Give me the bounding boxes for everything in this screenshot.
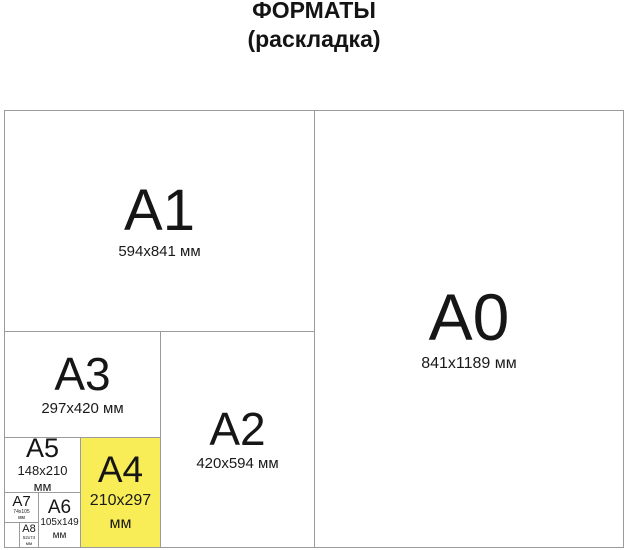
page-title: ФОРМАТЫ (раскладка) (0, 0, 628, 54)
format-dims-a6-line1: 105x149 (40, 517, 78, 530)
format-box-a3: A3 297x420 мм (4, 331, 161, 438)
page-title-line2: (раскладка) (0, 25, 628, 54)
format-dims-a7-line2: мм (18, 515, 25, 521)
format-label-a4: A4 (98, 451, 143, 489)
format-dims-a6-line2: мм (53, 530, 67, 543)
format-label-a0: A0 (429, 284, 510, 351)
page-title-line1: ФОРМАТЫ (0, 0, 628, 25)
format-box-a6: A6 105x149 мм (38, 492, 81, 548)
format-box-a1: A1 594x841 мм (4, 110, 315, 332)
format-dims-a0: 841x1189 мм (421, 354, 517, 374)
format-dims-a1: 594x841 мм (118, 243, 200, 262)
format-box-a2: A2 420x594 мм (160, 331, 315, 548)
format-label-a8: A8 (22, 524, 35, 535)
format-box-a5: A5 148x210 мм (4, 437, 81, 493)
format-dims-a5-line1: 148x210 (18, 463, 68, 479)
format-dims-a3: 297x420 мм (41, 400, 123, 419)
format-dims-a2: 420x594 мм (196, 455, 278, 474)
format-label-a6: A6 (48, 498, 71, 517)
format-box-a8: A8 52x74 мм (19, 522, 39, 548)
format-label-a5: A5 (26, 435, 59, 463)
format-label-a1: A1 (124, 181, 195, 240)
paper-formats-diagram: ФОРМАТЫ (раскладка) A1 594x841 мм A0 841… (0, 0, 628, 550)
format-dims-a8-line2: мм (26, 541, 32, 547)
format-dims-a4-line2: мм (110, 514, 132, 534)
format-box-a7: A7 74x105 мм (4, 492, 39, 523)
format-box-a4-highlighted: A4 210x297 мм (80, 437, 161, 548)
format-label-a3: A3 (54, 351, 110, 398)
format-box-a0: A0 841x1189 мм (314, 110, 624, 548)
format-dims-a4-line1: 210x297 (90, 491, 151, 511)
format-label-a2: A2 (209, 406, 265, 453)
format-label-a7: A7 (12, 494, 30, 509)
